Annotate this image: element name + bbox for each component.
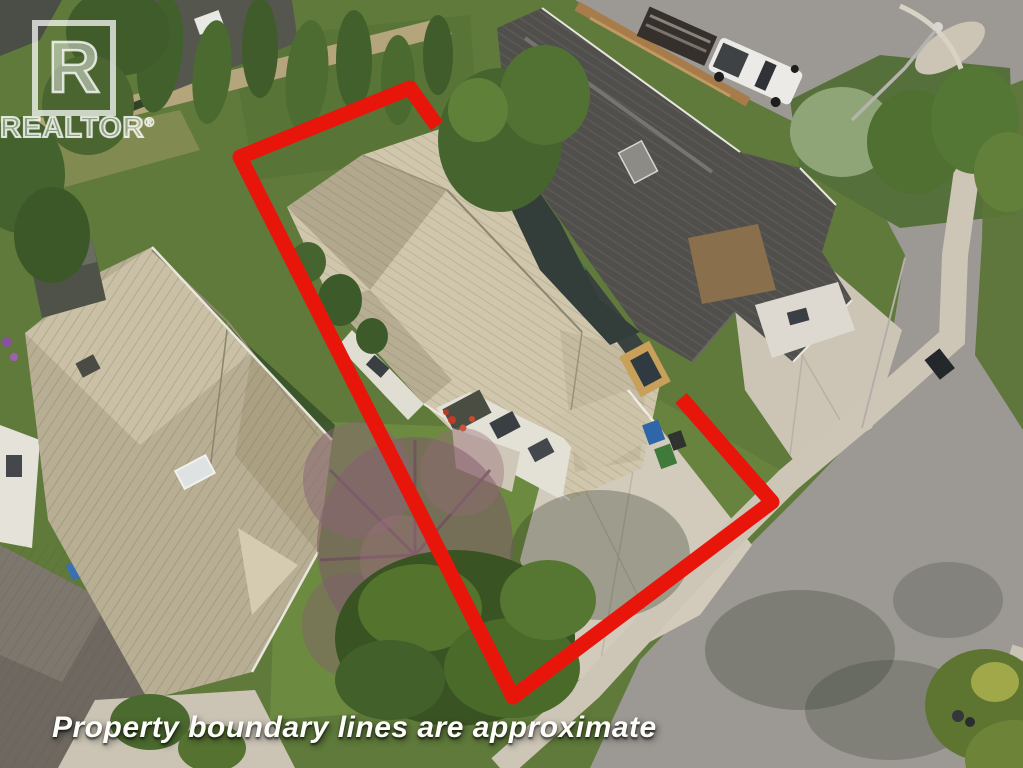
boundary-disclaimer-caption: Property boundary lines are approximate	[52, 711, 657, 745]
corner-tree-highlight	[448, 78, 508, 142]
bottom-right-tree-highlight	[971, 662, 1019, 702]
pedestrian-dot	[952, 710, 964, 722]
poplar-3	[242, 0, 278, 98]
front-yard-tree	[335, 550, 596, 726]
corner-tree-canopy-2	[500, 45, 590, 145]
porch-flowers-4	[469, 416, 475, 422]
corner-house-window	[6, 455, 22, 477]
aerial-scene	[0, 0, 1023, 768]
garden-flowers-1	[2, 337, 12, 347]
pedestrian-dot-2	[965, 717, 975, 727]
streetlight-head	[933, 22, 943, 32]
yard-bush-3	[356, 318, 388, 354]
garden-flowers-2	[10, 353, 18, 361]
poplar-6	[381, 35, 415, 125]
porch-flowers-1	[448, 416, 456, 424]
road-tree-shadow-3	[893, 562, 1003, 638]
poplar-7	[423, 15, 453, 95]
porch-flowers-3	[443, 409, 449, 415]
aerial-listing-photo: R REALTOR® Property boundary lines are a…	[0, 0, 1023, 768]
left-edge-tree-2	[14, 187, 90, 283]
poplar-5	[336, 10, 372, 110]
